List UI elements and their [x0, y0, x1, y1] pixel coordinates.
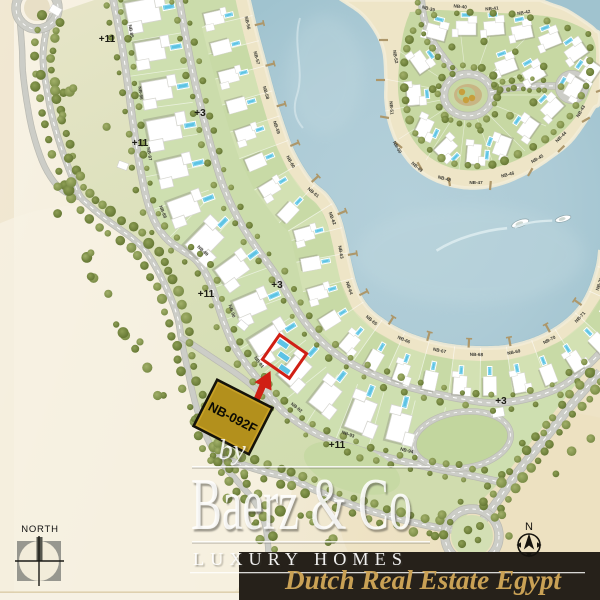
svg-text:+11: +11: [132, 138, 149, 149]
svg-text:+3: +3: [271, 280, 283, 291]
svg-text:NB-68: NB-68: [470, 352, 484, 357]
svg-text:+11: +11: [99, 34, 116, 45]
svg-text:Dutch Real Estate Egypt: Dutch Real Estate Egypt: [284, 565, 563, 595]
svg-text:by: by: [218, 434, 246, 466]
svg-text:+3: +3: [495, 396, 507, 407]
svg-text:+11: +11: [329, 440, 346, 451]
svg-text:+3: +3: [194, 108, 206, 119]
svg-text:N: N: [525, 521, 533, 533]
svg-text:+11: +11: [198, 289, 215, 300]
svg-text:NORTH: NORTH: [21, 524, 59, 535]
svg-text:NB-47: NB-47: [469, 180, 483, 185]
svg-text:Baerz & Co: Baerz & Co: [191, 464, 412, 546]
